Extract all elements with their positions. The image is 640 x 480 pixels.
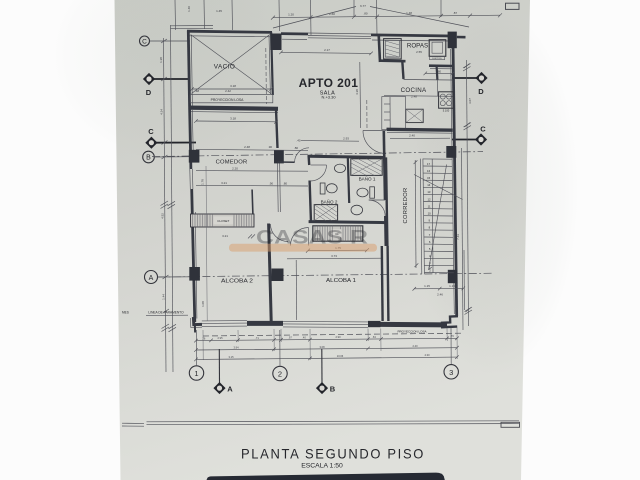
- svg-text:4.30: 4.30: [424, 353, 430, 357]
- svg-text:10: 10: [428, 212, 432, 216]
- svg-text:1.78: 1.78: [201, 179, 205, 185]
- svg-text:CORREDOR: CORREDOR: [403, 188, 409, 224]
- svg-text:14: 14: [427, 183, 431, 187]
- svg-text:2.17: 2.17: [324, 48, 330, 52]
- svg-text:1.40: 1.40: [187, 6, 191, 12]
- svg-text:2.48: 2.48: [411, 94, 417, 98]
- svg-text:15: 15: [427, 176, 431, 180]
- svg-text:.80: .80: [283, 182, 288, 186]
- svg-text:4.34: 4.34: [160, 109, 164, 115]
- svg-text:PROYECCION LOSA: PROYECCION LOSA: [211, 98, 245, 102]
- svg-text:3.07: 3.07: [468, 98, 472, 104]
- svg-text:3.21: 3.21: [221, 181, 227, 185]
- svg-text:.63: .63: [372, 335, 376, 339]
- svg-text:13: 13: [427, 190, 431, 194]
- svg-text:1: 1: [194, 369, 198, 378]
- svg-text:.76: .76: [202, 336, 206, 340]
- svg-text:3: 3: [449, 368, 453, 377]
- svg-text:LINEA DE PARAMENTO: LINEA DE PARAMENTO: [148, 310, 184, 314]
- svg-text:16: 16: [427, 169, 431, 173]
- svg-text:CLOSET: CLOSET: [217, 219, 229, 223]
- svg-text:.48: .48: [195, 89, 200, 93]
- svg-text:PLANTA SEGUNDO PISO: PLANTA SEGUNDO PISO: [241, 446, 425, 462]
- svg-text:.40: .40: [302, 336, 306, 340]
- svg-text:3.18: 3.18: [230, 117, 236, 121]
- svg-text:BAÑO 2: BAÑO 2: [321, 199, 338, 205]
- svg-text:10.06: 10.06: [337, 354, 344, 358]
- svg-text:BAÑO 1: BAÑO 1: [359, 176, 376, 182]
- svg-text:2.48: 2.48: [244, 145, 250, 149]
- svg-text:3.08: 3.08: [319, 345, 325, 349]
- svg-text:2.46: 2.46: [437, 292, 443, 296]
- svg-text:6.77: 6.77: [360, 4, 366, 8]
- svg-text:2.90: 2.90: [335, 335, 341, 339]
- svg-text:4.52: 4.52: [161, 213, 165, 219]
- svg-text:C: C: [148, 127, 154, 136]
- svg-text:1.15: 1.15: [449, 284, 455, 288]
- svg-text:ALCOBA 2: ALCOBA 2: [221, 279, 253, 285]
- svg-text:2.93: 2.93: [343, 136, 349, 140]
- svg-text:2: 2: [278, 370, 282, 379]
- svg-text:A: A: [227, 384, 233, 393]
- svg-text:1.38: 1.38: [159, 57, 163, 63]
- svg-text:3.21: 3.21: [222, 234, 228, 238]
- svg-text:4.38: 4.38: [355, 89, 359, 95]
- svg-text:17: 17: [427, 162, 431, 166]
- svg-text:VACIO: VACIO: [214, 63, 235, 70]
- svg-text:3.18: 3.18: [230, 84, 236, 88]
- svg-text:1.15: 1.15: [424, 284, 430, 288]
- svg-text:3.94: 3.94: [233, 346, 239, 350]
- svg-text:.90: .90: [269, 181, 274, 185]
- svg-text:D: D: [146, 88, 152, 97]
- svg-text:.40: .40: [296, 139, 301, 143]
- svg-text:COMEDOR: COMEDOR: [216, 159, 248, 165]
- svg-text:1.45: 1.45: [216, 9, 222, 13]
- svg-text:1.44: 1.44: [162, 294, 166, 300]
- svg-text:.97: .97: [288, 336, 292, 340]
- svg-text:ALCOBA 1: ALCOBA 1: [326, 278, 356, 284]
- svg-text:11: 11: [428, 204, 431, 208]
- svg-text:C: C: [480, 125, 486, 134]
- svg-text:ROPAS: ROPAS: [407, 43, 428, 50]
- svg-text:.90: .90: [268, 145, 273, 149]
- svg-text:ESCALA 1:50: ESCALA 1:50: [301, 463, 343, 470]
- svg-text:A: A: [149, 275, 154, 282]
- svg-text:3.73: 3.73: [331, 254, 337, 258]
- svg-text:2.42: 2.42: [225, 89, 231, 93]
- svg-text:B: B: [330, 384, 336, 393]
- svg-text:N.+3.30: N.+3.30: [321, 95, 336, 100]
- svg-text:2.95: 2.95: [217, 336, 223, 340]
- svg-text:.87: .87: [453, 11, 458, 15]
- svg-text:MES: MES: [122, 310, 129, 314]
- svg-text:2.20: 2.20: [232, 166, 238, 170]
- svg-text:.80: .80: [294, 146, 299, 150]
- svg-text:1.08: 1.08: [201, 301, 205, 307]
- svg-text:12: 12: [427, 197, 431, 201]
- svg-text:2.40: 2.40: [409, 134, 415, 138]
- svg-text:2.55: 2.55: [416, 50, 422, 54]
- svg-text:DUCTOS: DUCTOS: [432, 58, 442, 60]
- svg-text:APTO 201: APTO 201: [299, 76, 359, 90]
- svg-text:2.40: 2.40: [412, 344, 418, 348]
- svg-text:5.100: 5.100: [443, 108, 450, 112]
- svg-text:3.15: 3.15: [228, 355, 234, 359]
- svg-text:PROYECCION LOSA: PROYECCION LOSA: [397, 330, 426, 334]
- svg-text:.80: .80: [363, 12, 368, 16]
- svg-text:D: D: [478, 87, 484, 96]
- svg-text:.71: .71: [255, 336, 259, 340]
- svg-text:COCINA: COCINA: [401, 87, 427, 94]
- svg-text:B: B: [146, 155, 151, 162]
- svg-text:C: C: [142, 38, 147, 45]
- svg-text:1.20: 1.20: [288, 12, 294, 16]
